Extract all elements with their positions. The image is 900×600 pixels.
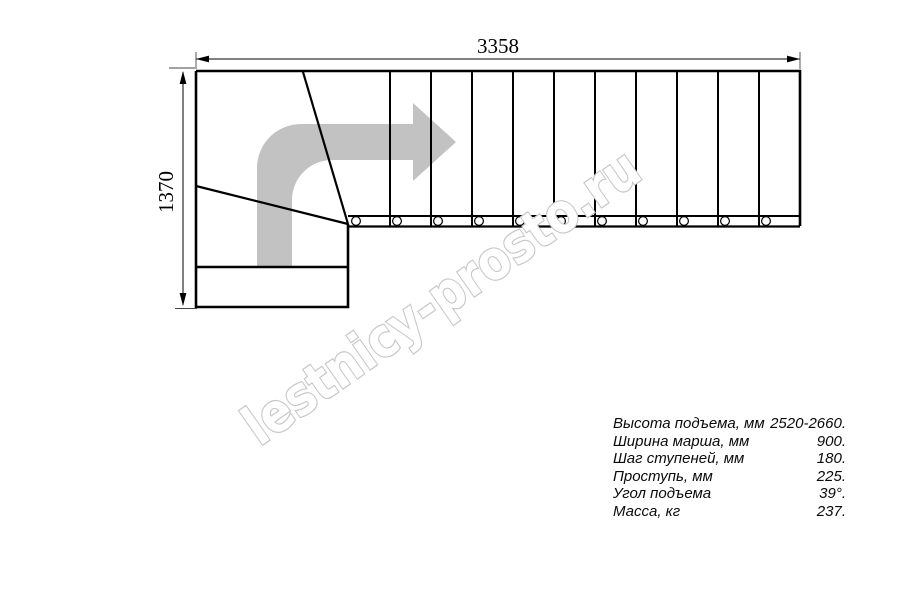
spec-row: Высота подъема, мм 2520-2660. <box>613 415 846 433</box>
dim-arrowhead-up <box>180 71 187 84</box>
spec-row: Шаг ступеней, мм 180. <box>613 450 846 468</box>
spec-label: Шаг ступеней, мм <box>613 450 744 468</box>
bolt-circle <box>434 217 443 226</box>
dim-arrowhead-right <box>787 56 800 63</box>
dimension-width: 3358 <box>196 34 800 69</box>
dim-arrowhead-down <box>180 293 187 306</box>
spec-row: Масса, кг 237. <box>613 503 846 521</box>
bolt-circle <box>721 217 730 226</box>
spec-value: 900. <box>817 433 846 451</box>
spec-row: Угол подъема 39°. <box>613 485 846 503</box>
dimension-width-label: 3358 <box>477 34 519 58</box>
spec-value: 2520-2660. <box>770 415 846 433</box>
dimension-height-label: 1370 <box>154 171 178 213</box>
bolt-circle <box>680 217 689 226</box>
spec-label: Высота подъема, мм <box>613 415 765 433</box>
direction-arrow-icon <box>257 103 456 266</box>
spec-value: 237. <box>817 503 846 521</box>
bolt-circle <box>393 217 402 226</box>
bolt-circle <box>352 217 361 226</box>
bolt-circle <box>762 217 771 226</box>
spec-value: 225. <box>817 468 846 486</box>
spec-row: Проступь, мм 225. <box>613 468 846 486</box>
bolt-circle <box>475 217 484 226</box>
bolt-circle <box>639 217 648 226</box>
spec-row: Ширина марша, мм 900. <box>613 433 846 451</box>
dimension-height: 1370 <box>154 68 197 309</box>
dim-arrowhead-left <box>196 56 209 63</box>
spec-label: Угол подъема <box>613 485 711 503</box>
spec-value: 39°. <box>819 485 846 503</box>
spec-label: Проступь, мм <box>613 468 713 486</box>
spec-label: Ширина марша, мм <box>613 433 749 451</box>
spec-value: 180. <box>817 450 846 468</box>
spec-table: Высота подъема, мм 2520-2660. Ширина мар… <box>613 415 846 521</box>
spec-label: Масса, кг <box>613 503 680 521</box>
